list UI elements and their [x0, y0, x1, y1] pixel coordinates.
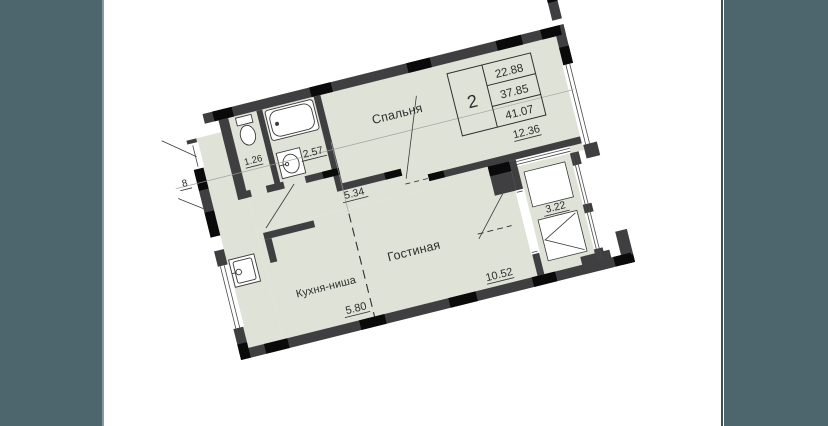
page-side-band-right [724, 0, 828, 426]
page-column-line-left [102, 0, 104, 426]
page-column-line-right [721, 0, 723, 426]
edge-partial-number: 8 [181, 178, 189, 190]
leader-left-wall [178, 193, 203, 214]
floor-plan: 2 22.88 37.85 41.07 Спальня 12.36 1.26 2… [137, 0, 677, 419]
wall-neighbor-top [545, 0, 562, 21]
floor-plan-svg: 2 22.88 37.85 41.07 Спальня 12.36 1.26 2… [137, 0, 677, 419]
page-side-band-left [0, 0, 102, 426]
